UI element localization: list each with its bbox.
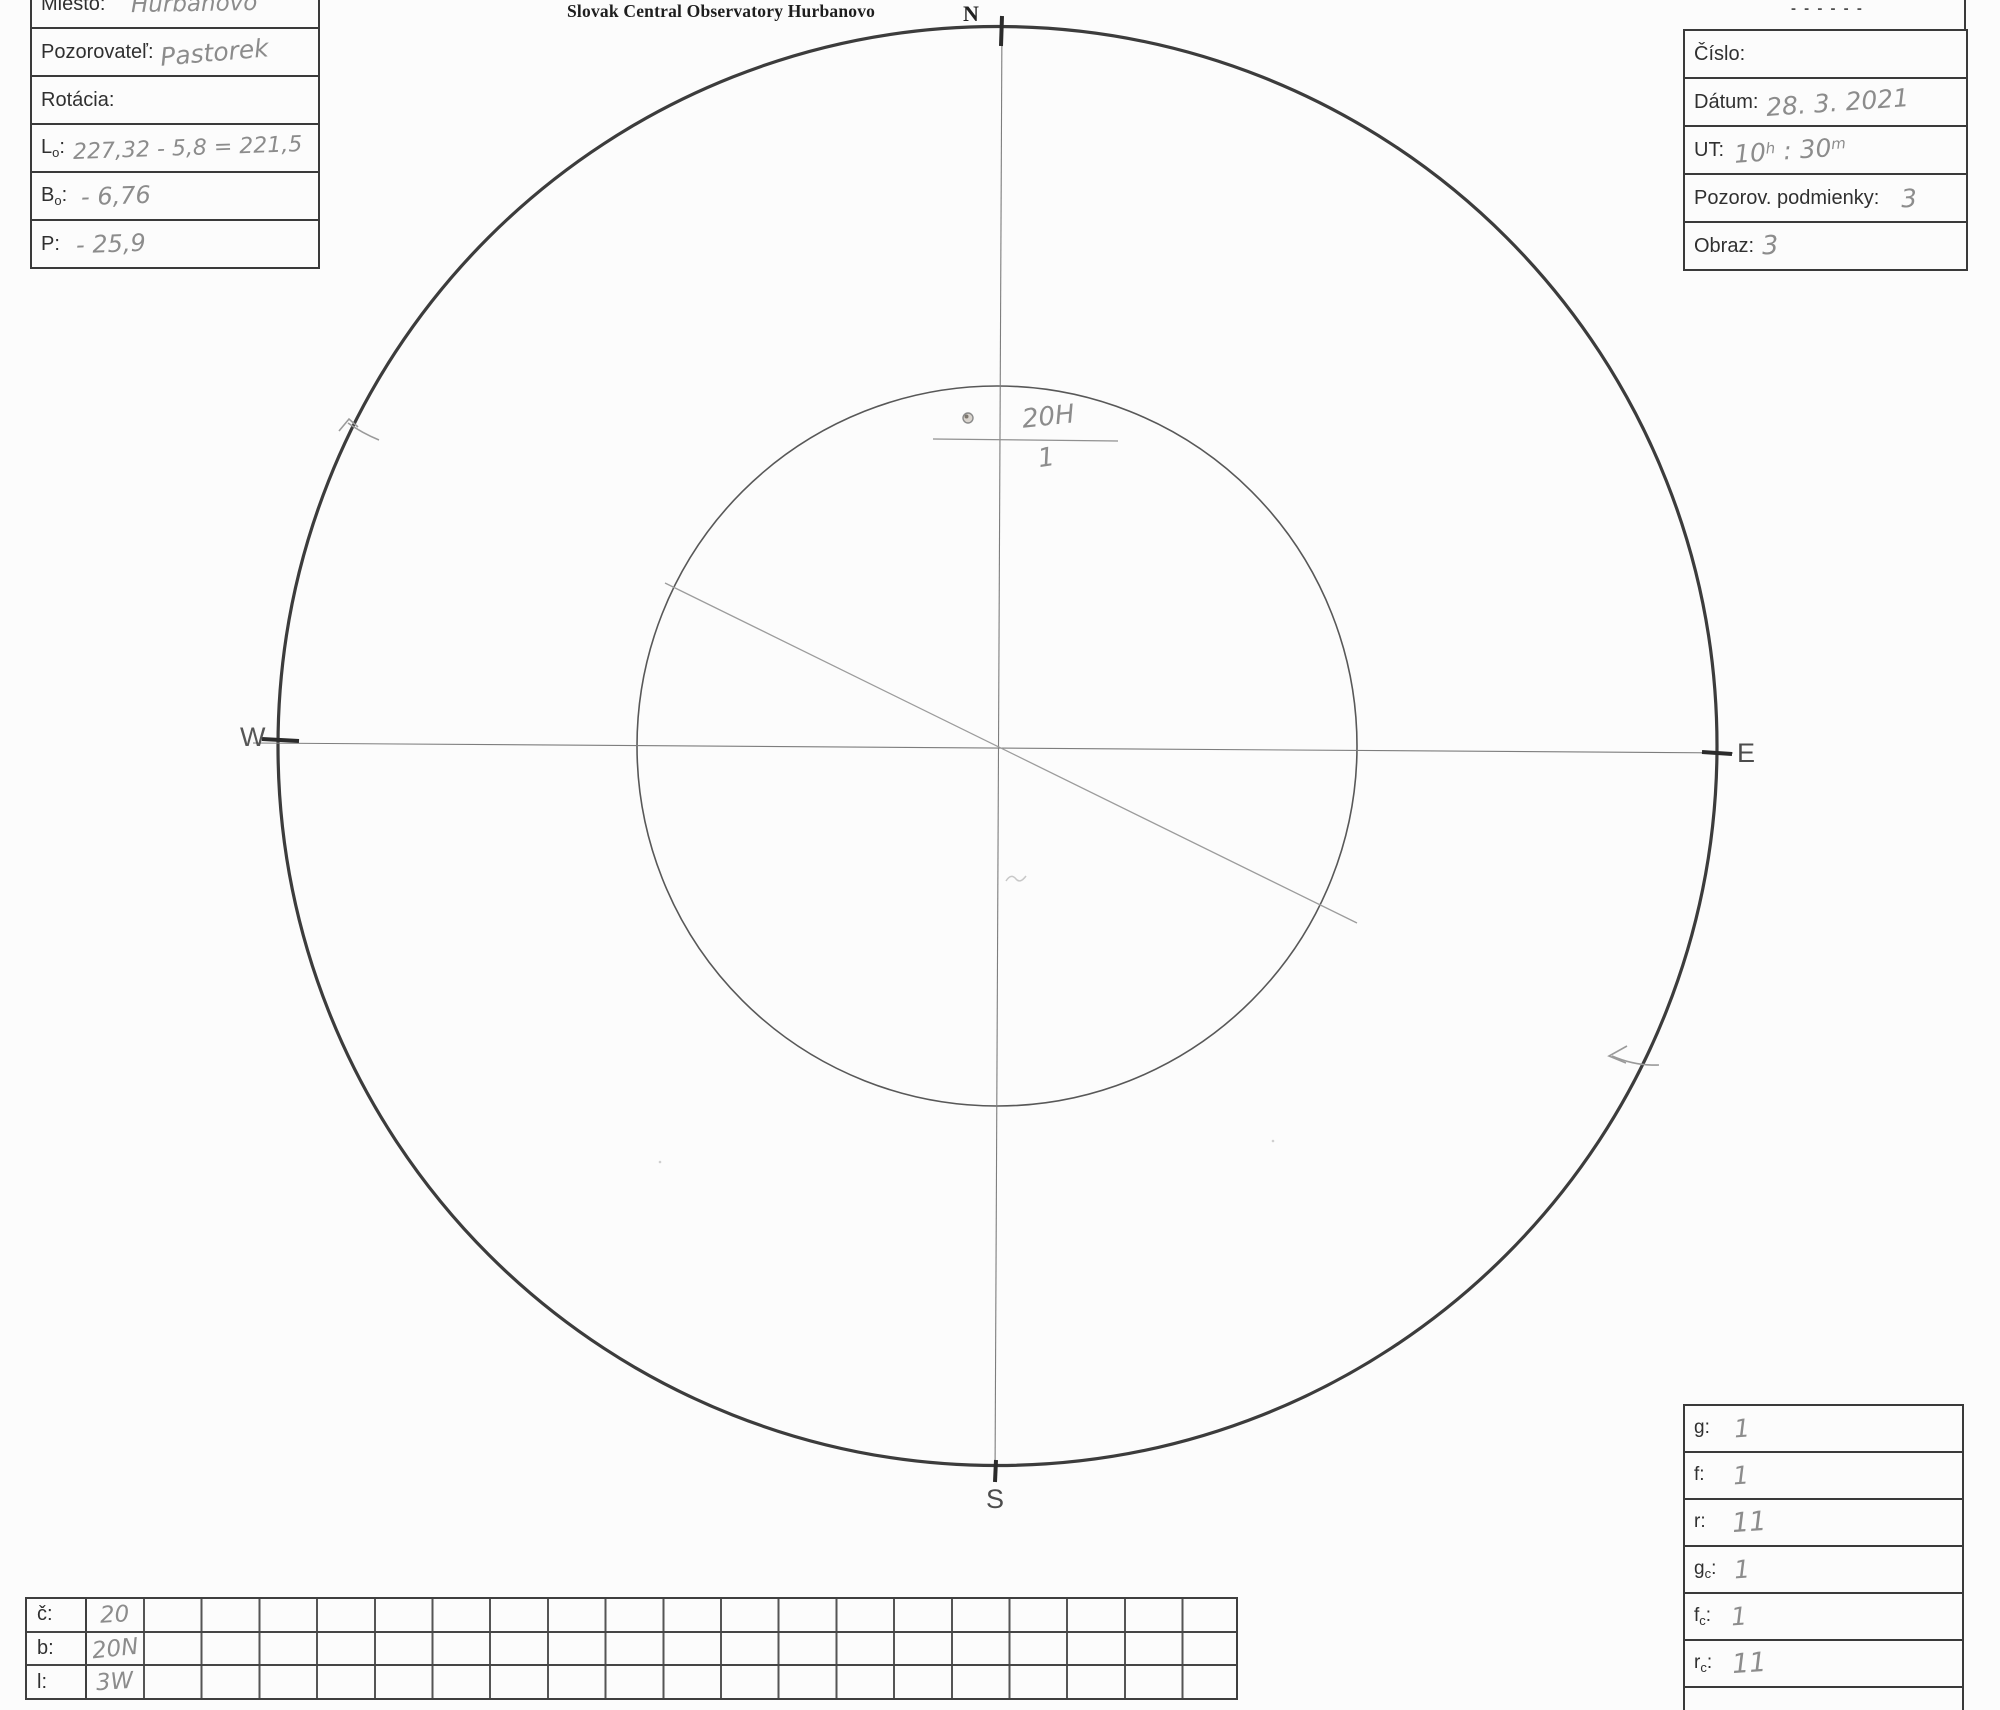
l0-row: Lo: 227,32 - 5,8 = 221,5: [32, 125, 318, 173]
miesto-value: Hurbanovo: [131, 0, 258, 18]
pozorovatel-value: Pastorek: [159, 33, 270, 71]
compass-east-label: E: [1737, 738, 1755, 769]
rotacia-label: Rotácia:: [41, 89, 114, 112]
gc-label: gc:: [1694, 1558, 1716, 1581]
sunspot-marker: [963, 413, 973, 423]
fc-label: fc:: [1694, 1605, 1711, 1628]
empty-cells-grid: [145, 1599, 1236, 1631]
datum-value: 28. 3. 2021: [1766, 83, 1911, 122]
sunspot-umbra: [965, 415, 969, 419]
r-label: r:: [1694, 1511, 1706, 1534]
miesto-row: Miesto: Hurbanovo: [32, 0, 318, 29]
ut-value: 10h : 30m: [1733, 132, 1847, 169]
cropped-row: [1685, 1688, 1962, 1710]
podmienky-row: Pozorov. podmienky: 3: [1685, 175, 1966, 223]
pozorovatel-label: Pozorovateľ:: [41, 41, 154, 64]
longitude-value: 3W: [95, 1668, 134, 1697]
group-annotation-underline: [933, 439, 1118, 441]
datum-row: Dátum: 28. 3. 2021: [1685, 79, 1966, 127]
l0-label: Lo:: [41, 136, 65, 160]
west-tick: [262, 739, 299, 741]
rotacia-row: Rotácia:: [32, 77, 318, 125]
g-label: g:: [1694, 1417, 1710, 1440]
position-angle-line: [665, 583, 1357, 923]
page-title: Slovak Central Observatory Hurbanovo: [567, 1, 875, 22]
r-value: 11: [1731, 1506, 1767, 1539]
g-row: g: 1: [1685, 1406, 1962, 1453]
datum-label: Dátum:: [1694, 91, 1758, 114]
longitude-row: l: 3W: [27, 1666, 1236, 1698]
obraz-row: Obraz: 3: [1685, 223, 1966, 271]
pozorovatel-row: Pozorovateľ: Pastorek: [32, 29, 318, 77]
compass-north-label: N: [963, 1, 979, 27]
dust-speck: [659, 1161, 662, 1164]
scanned-observation-sheet: Slovak Central Observatory Hurbanovo N S…: [0, 0, 2000, 1710]
g-value: 1: [1733, 1413, 1751, 1443]
cropped-header-remnant: - - - - - -: [1791, 0, 1864, 17]
observation-session-form: Číslo: Dátum: 28. 3. 2021 UT: 10h : 30m …: [1683, 29, 1968, 271]
b0-label: Bo:: [41, 184, 67, 208]
ut-row: UT: 10h : 30m: [1685, 127, 1966, 175]
p-row: P: - 25,9: [32, 221, 318, 269]
p-label: P:: [41, 233, 60, 256]
gc-value: 1: [1733, 1554, 1751, 1584]
f-row: f: 1: [1685, 1453, 1962, 1500]
obraz-label: Obraz:: [1694, 235, 1754, 258]
group-number-value: 20: [100, 1601, 131, 1628]
empty-cells-grid: [145, 1633, 1236, 1665]
obraz-value: 3: [1761, 231, 1779, 262]
group-number-label: č:: [37, 1603, 53, 1626]
fc-row: fc: 1: [1685, 1594, 1962, 1641]
group-positions-table: č: 20 b: 20N l: 3W: [25, 1597, 1238, 1700]
podmienky-value: 3: [1901, 183, 1918, 213]
b0-value: - 6,76: [81, 181, 152, 211]
rc-row: rc: 11: [1685, 1641, 1962, 1688]
pencil-arrow-upper-left: [339, 419, 379, 440]
compass-west-label: W: [240, 722, 265, 753]
dust-speck: [1272, 1140, 1275, 1143]
cropped-border-stub: [1964, 0, 1966, 29]
cislo-row: Číslo:: [1685, 31, 1966, 79]
empty-cells-grid: [145, 1666, 1236, 1698]
pencil-smudge: [1006, 876, 1026, 881]
longitude-label: l:: [37, 1671, 47, 1694]
f-value: 1: [1732, 1460, 1750, 1490]
b0-row: Bo: - 6,76: [32, 173, 318, 221]
latitude-row: b: 20N: [27, 1633, 1236, 1667]
south-tick: [995, 1460, 996, 1482]
sunspot-counts-form: g: 1 f: 1 r: 11 gc: 1 fc: 1 rc: 11: [1683, 1404, 1964, 1710]
latitude-label: b:: [37, 1637, 54, 1660]
sunspot-group-number: 20H: [1021, 399, 1076, 434]
rc-label: rc:: [1694, 1652, 1712, 1675]
gc-row: gc: 1: [1685, 1547, 1962, 1594]
p-value: - 25,9: [75, 229, 146, 259]
group-number-row: č: 20: [27, 1599, 1236, 1633]
latitude-value: 20N: [91, 1633, 140, 1664]
cislo-label: Číslo:: [1694, 43, 1745, 66]
north-tick: [1001, 16, 1002, 46]
miesto-label: Miesto:: [41, 0, 105, 16]
observation-site-form: Miesto: Hurbanovo Pozorovateľ: Pastorek …: [30, 0, 320, 269]
compass-south-label: S: [986, 1484, 1004, 1515]
r-row: r: 11: [1685, 1500, 1962, 1547]
podmienky-label: Pozorov. podmienky:: [1694, 187, 1879, 210]
rc-value: 11: [1731, 1647, 1767, 1680]
f-label: f:: [1694, 1464, 1705, 1487]
ut-label: UT:: [1694, 139, 1724, 162]
fc-value: 1: [1730, 1601, 1748, 1631]
l0-value: 227,32 - 5,8 = 221,5: [73, 132, 303, 165]
east-tick: [1702, 752, 1732, 754]
